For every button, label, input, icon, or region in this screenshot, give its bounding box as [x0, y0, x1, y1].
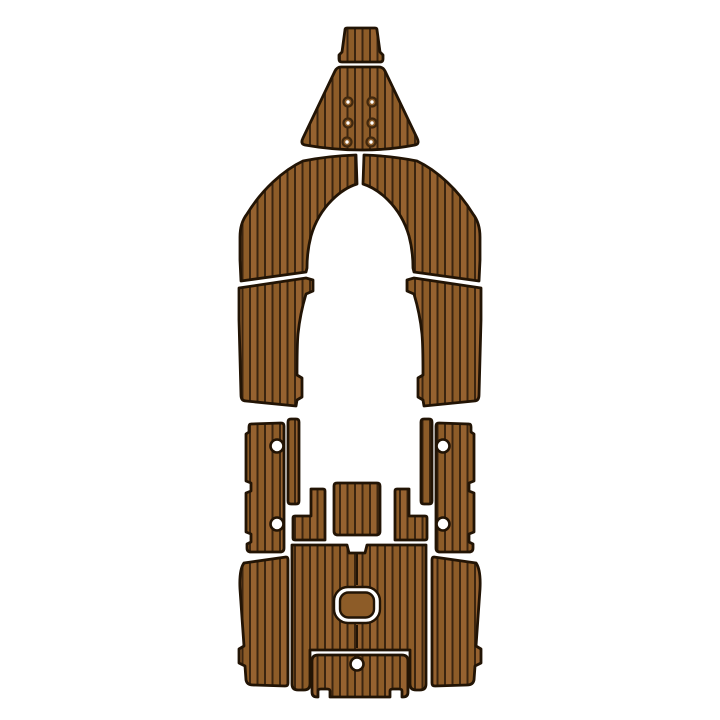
gunwale-strip-left [288, 419, 299, 504]
mounting-hole [271, 518, 284, 531]
floor-wing-left [239, 557, 288, 686]
snap-fastener [341, 136, 352, 147]
product-photo-canvas [0, 0, 720, 720]
snap-fastener [366, 117, 377, 128]
gunwale-strip-right [421, 419, 432, 504]
mounting-hole [351, 658, 364, 671]
mounting-hole [271, 440, 284, 453]
mounting-hole [437, 518, 450, 531]
boat-decking-pad-set-image [0, 0, 720, 720]
snap-fastener [342, 96, 353, 107]
snap-fastener [342, 117, 353, 128]
snap-fastener [365, 136, 376, 147]
bow-tip-pad [339, 28, 383, 62]
snap-fastener [366, 96, 377, 107]
mounting-hole [437, 440, 450, 453]
console-step-pad [334, 483, 380, 535]
hatch-inner-pad [340, 593, 374, 618]
floor-wing-right [432, 557, 481, 686]
